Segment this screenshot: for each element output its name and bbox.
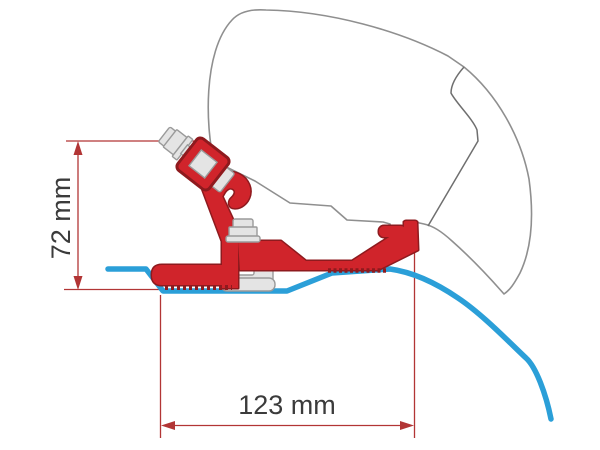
width-dimension-label: 123 mm (238, 390, 336, 420)
height-arrow-up (74, 141, 83, 155)
height-dimension-label: 72 mm (46, 177, 76, 260)
width-arrow-right (400, 421, 414, 430)
width-arrow-left (161, 421, 175, 430)
bar-bolt-washer (226, 236, 260, 242)
diagram-canvas: 72 mm 123 mm (0, 0, 600, 450)
height-arrow-down (74, 276, 83, 290)
adapter-diagram-svg: 72 mm 123 mm (0, 0, 600, 450)
